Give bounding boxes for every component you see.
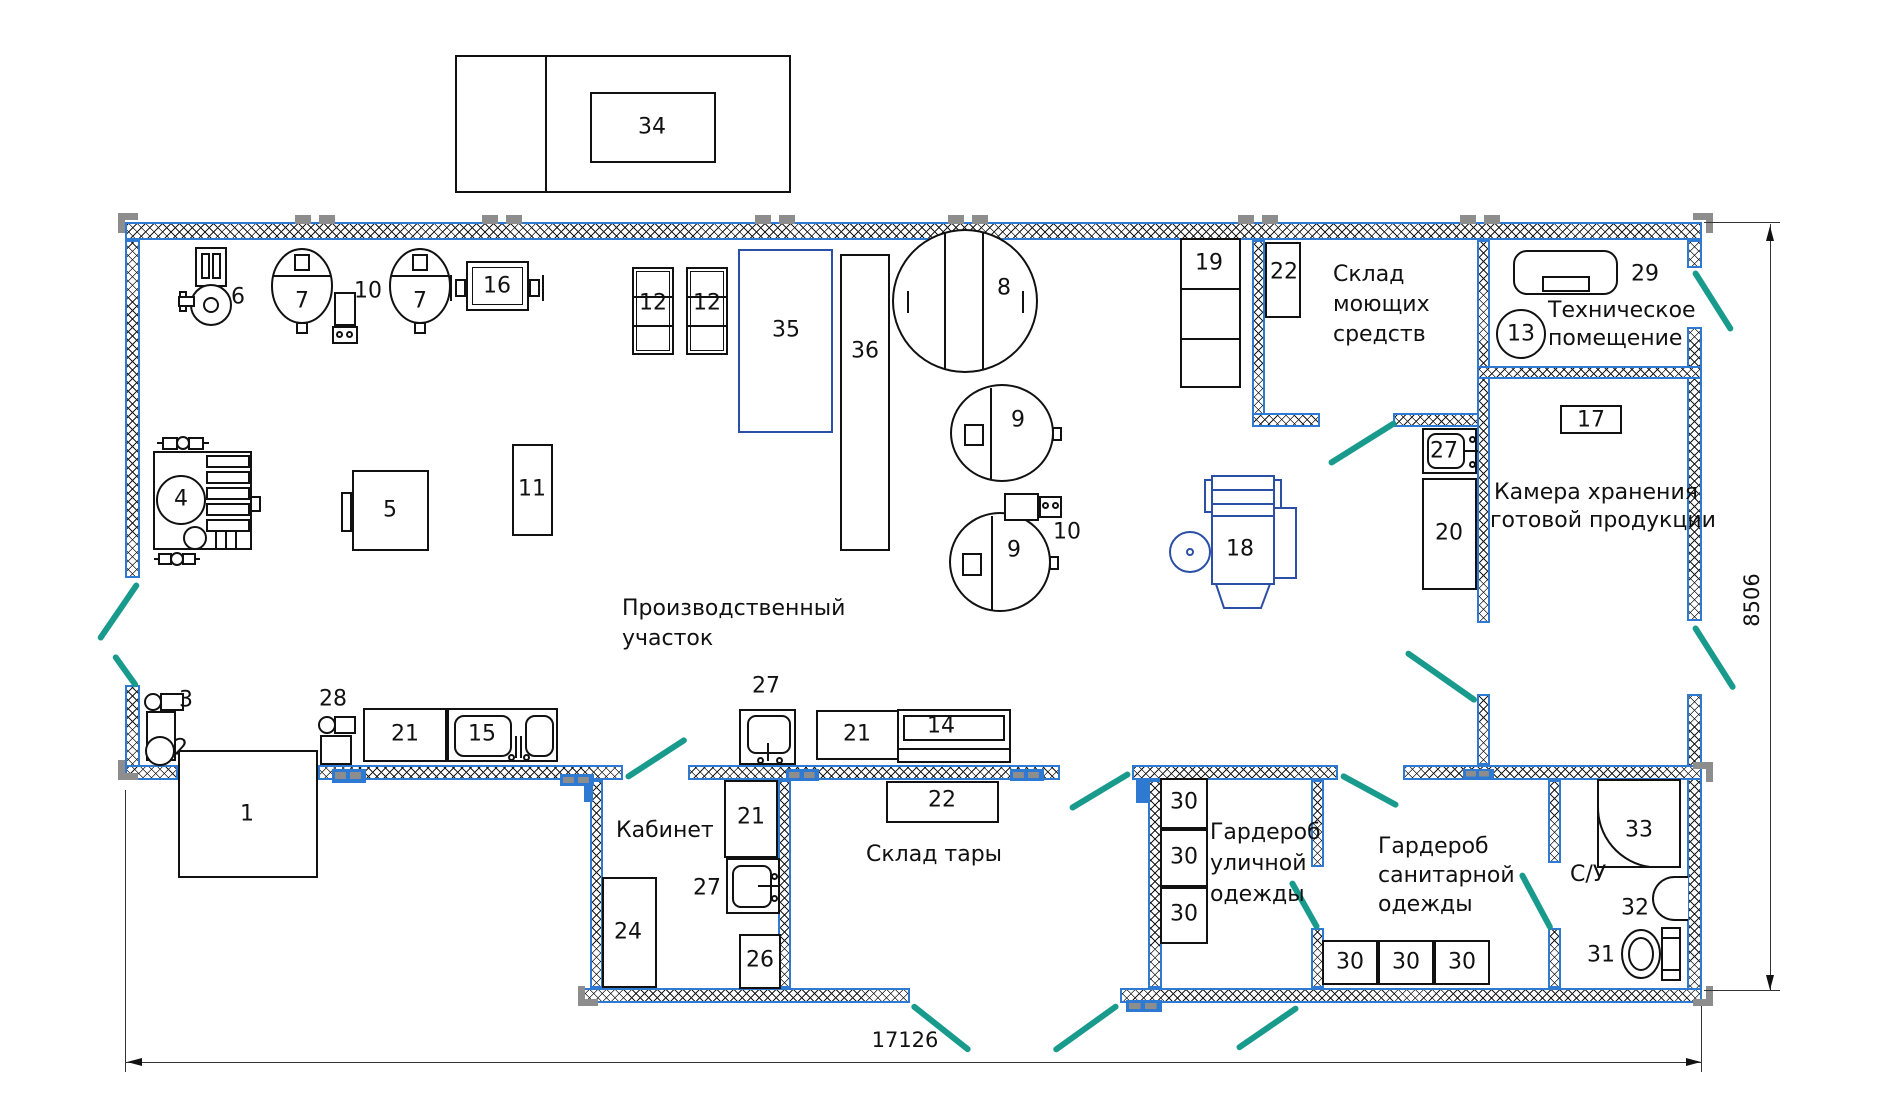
equip-label-13: 13 xyxy=(1507,322,1535,347)
door-right-exterior xyxy=(1691,624,1736,691)
equip-label-27: 27 xyxy=(693,876,721,901)
wall-detergent-bottom-b xyxy=(1393,413,1490,427)
room-label-production-2: участок xyxy=(622,626,713,651)
equipment-15-sink xyxy=(447,708,558,762)
room-label-technical-1: Техническое xyxy=(1548,298,1696,323)
vent-mark xyxy=(1484,215,1500,224)
vent-mark xyxy=(779,215,795,224)
door-wc xyxy=(1518,872,1554,931)
door-sill xyxy=(786,769,819,781)
corner-mark xyxy=(1693,762,1713,782)
equipment-10-roller xyxy=(336,331,343,338)
equipment-12-shelf xyxy=(634,325,672,327)
vent-mark xyxy=(1262,215,1278,224)
dim-line-height xyxy=(1770,224,1771,990)
door-corridor xyxy=(1068,770,1131,811)
dim-text-height: 8506 xyxy=(1740,573,1764,626)
equip-label-30: 30 xyxy=(1448,950,1476,975)
equipment-12-shelf xyxy=(688,325,726,327)
dim-text-width: 17126 xyxy=(872,1028,939,1052)
equip-label-1: 1 xyxy=(240,802,254,827)
equip-label-35: 35 xyxy=(772,318,800,343)
wall-wc-left-a xyxy=(1548,780,1561,863)
door-technical-exterior xyxy=(1691,269,1734,332)
door-left-exterior-b xyxy=(112,653,140,688)
vent-mark xyxy=(755,215,771,224)
door-detergent xyxy=(1327,420,1397,467)
room-label-technical-2: помещение xyxy=(1548,326,1682,351)
equip-label-19: 19 xyxy=(1195,251,1223,276)
equipment-9-stub xyxy=(1049,556,1059,570)
equip-label-24: 24 xyxy=(614,920,642,945)
equip-label-30: 30 xyxy=(1170,790,1198,815)
room-label-production-1: Производственный xyxy=(622,596,845,621)
vent-mark xyxy=(948,215,964,224)
wall-left-lower xyxy=(125,685,140,768)
equipment-10-roller xyxy=(1052,502,1059,509)
wall-left-upper xyxy=(125,240,140,578)
equipment-16-flange xyxy=(529,279,540,297)
equip-label-15: 15 xyxy=(468,722,496,747)
room-label-street-wardrobe-3: одежды xyxy=(1210,882,1305,907)
equipment-31-toilet xyxy=(1620,924,1684,984)
equipment-16-tick xyxy=(542,275,544,301)
wall-bottom-1 xyxy=(583,988,910,1003)
equip-label-12: 12 xyxy=(693,291,721,316)
equipment-5-tab xyxy=(341,492,352,532)
equip-label-21: 21 xyxy=(843,722,871,747)
equipment-16-flange xyxy=(455,279,466,297)
equip-label-8: 8 xyxy=(997,276,1011,301)
equipment-34-divider xyxy=(545,57,547,191)
room-label-sanitary-wardrobe-1: Гардероб xyxy=(1378,834,1489,859)
room-label-detergent-2: моющих xyxy=(1333,292,1430,317)
equip-label-16: 16 xyxy=(483,274,511,299)
equip-label-9: 9 xyxy=(1007,538,1021,563)
equip-label-10: 10 xyxy=(1053,520,1081,545)
wall-mid-3 xyxy=(688,765,1060,780)
equipment-19-shelf xyxy=(1182,288,1239,290)
room-label-sanitary-wardrobe-2: санитарной xyxy=(1378,863,1515,888)
door-sill xyxy=(1463,769,1494,780)
dim-extension-left xyxy=(125,790,126,1072)
equipment-16-tick xyxy=(450,275,452,301)
vent-mark xyxy=(506,215,522,224)
equip-label-10: 10 xyxy=(354,279,382,304)
equipment-10-unit xyxy=(334,292,356,326)
equip-label-20: 20 xyxy=(1435,521,1463,546)
door-sill xyxy=(1136,779,1149,803)
equip-label-7: 7 xyxy=(413,289,427,314)
equip-label-4: 4 xyxy=(174,487,188,512)
equip-label-36: 36 xyxy=(851,339,879,364)
equip-label-14: 14 xyxy=(927,714,955,739)
vent-mark xyxy=(319,215,335,224)
equip-label-28: 28 xyxy=(319,687,347,712)
floor-plan: 34 xyxy=(0,0,1889,1111)
door-storage-chamber xyxy=(1404,650,1478,704)
equipment-10-roller xyxy=(346,331,353,338)
equipment-28-pump xyxy=(316,710,358,766)
equipment-29-inner xyxy=(1542,276,1590,292)
equip-label-32: 32 xyxy=(1621,896,1649,921)
vent-mark xyxy=(1238,215,1254,224)
wall-chamber-left-b xyxy=(1477,694,1490,765)
door-office xyxy=(624,736,688,780)
room-label-storage-2: готовой продукции xyxy=(1490,508,1716,533)
room-label-detergent-1: Склад xyxy=(1333,262,1404,287)
dim-arrow-top xyxy=(1766,226,1774,241)
wall-right-a xyxy=(1687,240,1702,268)
wall-top xyxy=(125,222,1702,240)
corner-mark xyxy=(578,986,598,1006)
door-sill xyxy=(1010,769,1044,781)
door-sill xyxy=(584,786,593,802)
equip-label-31: 31 xyxy=(1587,943,1615,968)
dim-extension-top-right xyxy=(1704,222,1780,223)
equip-label-21: 21 xyxy=(737,805,765,830)
wall-detergent-bottom-a xyxy=(1252,413,1320,427)
equipment-27-sink xyxy=(726,858,780,914)
equip-label-34: 34 xyxy=(638,115,666,140)
equipment-10-roller xyxy=(1042,502,1049,509)
door-sill xyxy=(560,774,594,786)
equip-label-6: 6 xyxy=(231,285,245,310)
room-label-office: Кабинет xyxy=(616,818,714,843)
wall-right-c xyxy=(1687,694,1702,1003)
equip-label-9: 9 xyxy=(1011,408,1025,433)
equip-label-27: 27 xyxy=(752,674,780,699)
equip-label-29: 29 xyxy=(1631,262,1659,287)
equip-label-30: 30 xyxy=(1336,950,1364,975)
dim-arrow-left xyxy=(127,1058,142,1066)
equipment-9-stub xyxy=(1052,427,1062,441)
wall-bottom-2 xyxy=(1120,988,1702,1003)
room-label-wc: С/У xyxy=(1570,862,1606,887)
equip-label-22: 22 xyxy=(1270,260,1298,285)
equip-label-30: 30 xyxy=(1170,902,1198,927)
room-label-container: Склад тары xyxy=(866,842,1002,867)
door-bottom-exterior xyxy=(1235,1005,1299,1052)
door-sill xyxy=(332,769,366,783)
room-label-street-wardrobe-2: уличной xyxy=(1210,851,1307,876)
equip-label-3: 3 xyxy=(179,688,193,713)
door-sill xyxy=(1126,1000,1162,1012)
equip-label-30: 30 xyxy=(1170,845,1198,870)
equip-label-30: 30 xyxy=(1392,950,1420,975)
corner-mark xyxy=(118,760,138,780)
wall-detergent-left xyxy=(1252,240,1265,415)
door-sanitary-wardrobe xyxy=(1340,772,1400,808)
room-label-detergent-3: средств xyxy=(1333,322,1426,347)
equipment-4-assembly xyxy=(150,437,262,569)
dim-line-width xyxy=(125,1062,1702,1063)
equip-label-5: 5 xyxy=(383,498,397,523)
wall-mid-5 xyxy=(1403,765,1702,780)
dim-extension-bottom-right xyxy=(1704,990,1780,991)
door-entrance-right-leaf xyxy=(1052,1003,1120,1054)
equip-label-17: 17 xyxy=(1577,408,1605,433)
vent-mark xyxy=(972,215,988,224)
wall-chamber-left-a xyxy=(1477,240,1490,623)
equipment-27-sink xyxy=(739,709,796,765)
equip-label-12: 12 xyxy=(639,291,667,316)
equip-label-7: 7 xyxy=(295,289,309,314)
equipment-8-tank xyxy=(892,229,1038,373)
equip-label-18: 18 xyxy=(1226,537,1254,562)
wall-technical-bottom xyxy=(1477,366,1702,379)
room-label-street-wardrobe-1: Гардероб xyxy=(1210,820,1321,845)
corner-mark xyxy=(118,213,138,233)
equipment-36 xyxy=(840,254,890,551)
room-label-storage-1: Камера хранения xyxy=(1494,480,1698,505)
equip-label-26: 26 xyxy=(746,948,774,973)
equip-label-27: 27 xyxy=(1430,439,1458,464)
equipment-32-sink xyxy=(1652,876,1688,921)
vent-mark xyxy=(1460,215,1476,224)
corner-mark xyxy=(1693,986,1713,1006)
equip-label-33: 33 xyxy=(1625,818,1653,843)
equipment-19-shelf xyxy=(1182,338,1239,340)
vent-mark xyxy=(295,215,311,224)
dim-arrow-bottom xyxy=(1766,975,1774,990)
equipment-9-hatch xyxy=(964,424,984,446)
equip-label-21: 21 xyxy=(391,722,419,747)
equipment-9-hatch xyxy=(962,553,982,576)
dim-arrow-right xyxy=(1686,1058,1701,1066)
vent-mark xyxy=(482,215,498,224)
wall-wc-left-b xyxy=(1548,928,1561,988)
door-left-exterior-a xyxy=(97,581,141,641)
room-label-sanitary-wardrobe-3: одежды xyxy=(1378,892,1473,917)
equip-label-22: 22 xyxy=(928,788,956,813)
corner-mark xyxy=(1693,213,1713,233)
equipment-10-unit xyxy=(1004,493,1039,521)
equip-label-11: 11 xyxy=(518,477,546,502)
